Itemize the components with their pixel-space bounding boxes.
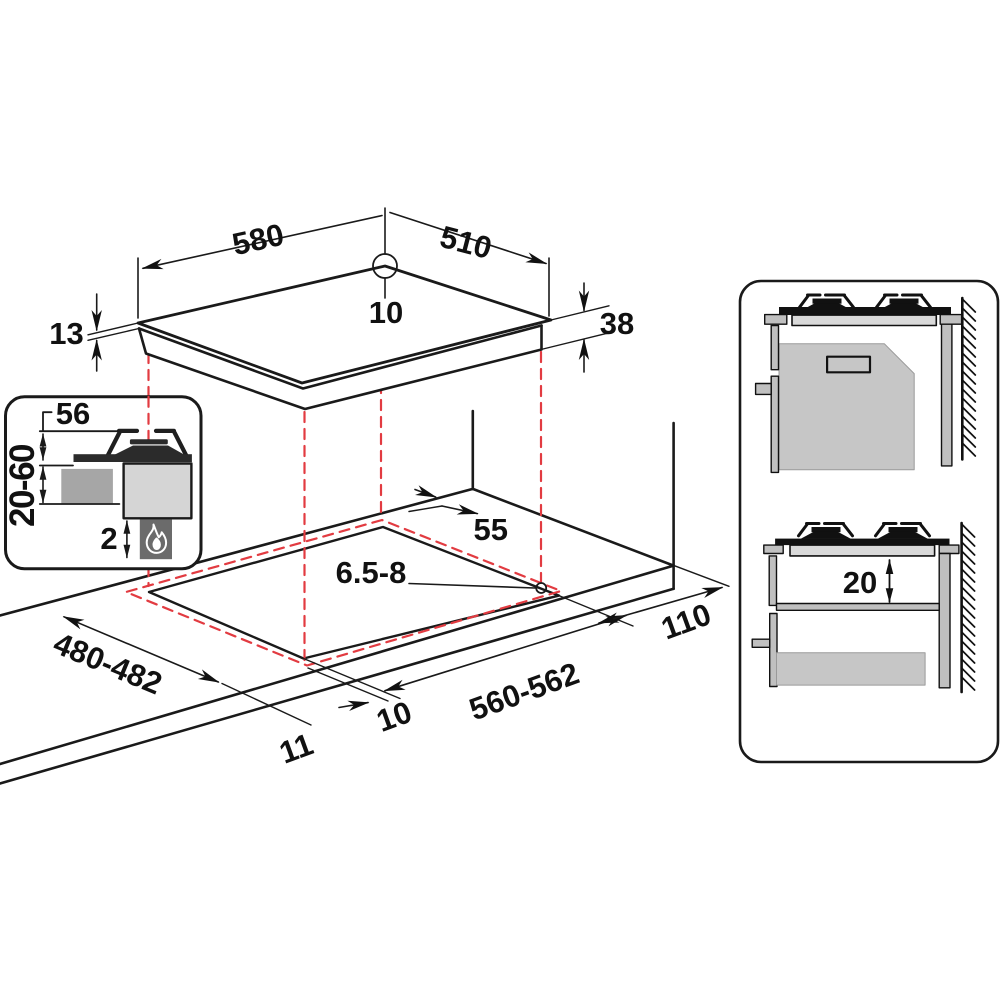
svg-text:10: 10 bbox=[369, 295, 403, 330]
svg-text:20: 20 bbox=[843, 565, 877, 600]
svg-text:2: 2 bbox=[100, 521, 117, 556]
svg-text:55: 55 bbox=[473, 512, 507, 547]
svg-text:13: 13 bbox=[49, 316, 83, 351]
svg-text:38: 38 bbox=[600, 306, 634, 341]
svg-text:20-60: 20-60 bbox=[3, 444, 42, 527]
svg-text:56: 56 bbox=[56, 396, 90, 431]
svg-text:6.5-8: 6.5-8 bbox=[336, 555, 407, 590]
